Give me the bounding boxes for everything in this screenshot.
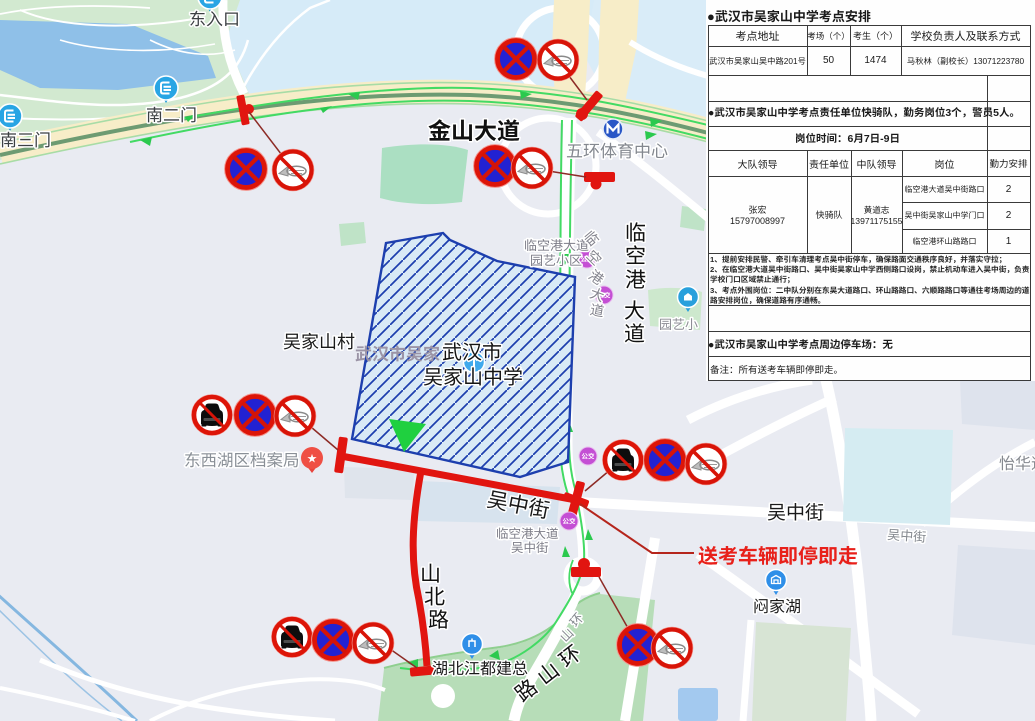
svg-text:临空港大道: 临空港大道 bbox=[524, 238, 589, 253]
svg-text:吴中街: 吴中街 bbox=[767, 503, 824, 524]
svg-text:园艺小: 园艺小 bbox=[659, 317, 698, 332]
svg-text:大: 大 bbox=[624, 300, 645, 323]
svg-text:吴家山中学: 吴家山中学 bbox=[423, 367, 523, 389]
svg-text:怡华道: 怡华道 bbox=[999, 455, 1035, 473]
svg-text:临: 临 bbox=[625, 222, 646, 245]
svg-text:道: 道 bbox=[624, 323, 645, 346]
svg-text:湖北江都建总: 湖北江都建总 bbox=[432, 660, 528, 678]
svg-text:临空港大道: 临空港大道 bbox=[496, 527, 559, 541]
svg-text:武汉市: 武汉市 bbox=[442, 342, 502, 364]
svg-text:山: 山 bbox=[420, 563, 441, 586]
svg-text:吴中街: 吴中街 bbox=[511, 541, 549, 555]
svg-text:路: 路 bbox=[428, 609, 449, 632]
svg-text:闷家湖: 闷家湖 bbox=[753, 598, 801, 616]
svg-text:园艺小区: 园艺小区 bbox=[530, 253, 582, 268]
svg-text:东西湖区档案局: 东西湖区档案局 bbox=[184, 452, 300, 470]
svg-text:★: ★ bbox=[307, 452, 318, 466]
svg-text:武汉市吴家: 武汉市吴家 bbox=[355, 345, 440, 364]
svg-text:五环体育中心: 五环体育中心 bbox=[566, 142, 668, 161]
svg-text:空: 空 bbox=[625, 245, 646, 268]
svg-text:港: 港 bbox=[625, 269, 646, 292]
svg-text:南三门: 南三门 bbox=[0, 131, 51, 150]
svg-text:吴中街: 吴中街 bbox=[887, 527, 927, 545]
svg-text:北: 北 bbox=[424, 586, 445, 609]
svg-text:送考车辆即停即走: 送考车辆即停即走 bbox=[698, 545, 858, 568]
svg-text:道: 道 bbox=[589, 301, 606, 319]
svg-text:东入口: 东入口 bbox=[189, 10, 240, 29]
svg-text:吴家山村: 吴家山村 bbox=[283, 332, 355, 352]
svg-text:南二门: 南二门 bbox=[146, 106, 197, 125]
svg-text:金山大道: 金山大道 bbox=[428, 118, 520, 144]
